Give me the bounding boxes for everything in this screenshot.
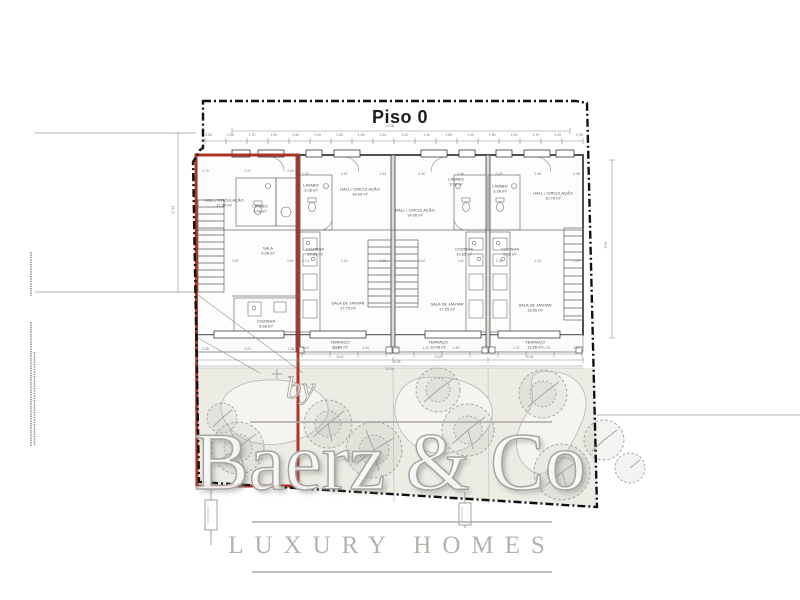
- room-label-unit1-lavabo: LAVABO2.43 m²: [252, 204, 267, 215]
- room-label-unit2-terraco: TERRAÇO10.90 m²: [330, 340, 350, 351]
- dim-terrace-total-4: 5.06: [527, 355, 534, 359]
- dim-value: 1.05: [227, 133, 234, 137]
- tree: [584, 420, 624, 460]
- room-label-unit4-cozinha: COZINHA9.55 m²: [501, 247, 519, 258]
- dim-value: 0.41: [341, 172, 348, 176]
- dim-value: 0.30: [418, 172, 425, 176]
- tree: [615, 453, 645, 483]
- dim-value: 1.20: [362, 346, 369, 350]
- watermark-rule-bottom: [252, 571, 552, 573]
- upper-dimension-row: 1.020.412.440.302.460.432.460.38: [302, 172, 580, 176]
- room-label-unit3-terraco: TERRAÇO10.45 m²: [428, 340, 448, 351]
- room-label-unit2-hall: HALL / CIRCULAÇÃO14.00 m²: [340, 187, 379, 198]
- room-label-unit2-sala: SALA DE JANTAR17.75 m²: [331, 301, 364, 312]
- dim-value: 1.70: [249, 133, 256, 137]
- room-label-unit1-cozinha: COZINHA8.68 m²: [257, 319, 275, 330]
- watermark-by: by: [286, 370, 315, 406]
- dim-value: 2.46: [534, 172, 541, 176]
- unit1-bottom-dims: 2.480.971.18: [202, 347, 294, 351]
- dim-value: 1.19: [302, 346, 309, 350]
- dim-left-height: 11.34: [171, 206, 175, 215]
- dim-value: 0.38: [205, 133, 212, 137]
- mid-dimension-row: 2.131.441.000.821.622.351.031.90: [302, 259, 580, 263]
- dim-terrace-total-1: 5.45: [337, 355, 344, 359]
- dim-value: 1.02: [302, 172, 309, 176]
- room-label-unit4-lavabo: LAVABO3.38 m²: [492, 184, 507, 195]
- dim-terrace-total-2: 9.38: [394, 360, 401, 364]
- dim-value: 2.48: [202, 347, 209, 351]
- dim-value: 2.35: [496, 259, 503, 263]
- dim-terrace-total-3: 5.32: [435, 355, 442, 359]
- room-label-unit2-cozinha: COZINHA10.65 m²: [306, 247, 324, 258]
- dim-value: 1.70: [202, 169, 209, 173]
- dim-value: 1.70: [532, 133, 539, 137]
- dim-total-width: 23.08: [386, 124, 395, 128]
- dim-value: 1.20: [573, 346, 580, 350]
- watermark-brand: Baerz & Co: [194, 415, 586, 509]
- dim-value: 2.46: [457, 172, 464, 176]
- room-label-unit3-sala: SALA DE JANTAR17.25 m²: [430, 302, 463, 313]
- room-label-unit4-hall: HALL / CIRCULAÇÃO10.70 m²: [533, 191, 572, 202]
- dim-value: 1.47: [513, 346, 520, 350]
- unit1-top-dims: 1.700.372.40: [202, 169, 294, 173]
- floorplan-page: { "title": "Piso 0", "watermark": { "pre…: [0, 0, 800, 600]
- dim-value: 1.00: [336, 133, 343, 137]
- dim-value: 0.38: [573, 172, 580, 176]
- room-label-unit1-sala: SALA6.28 m²: [261, 246, 275, 257]
- dim-value: 1.90: [314, 133, 321, 137]
- dim-value: 1.44: [341, 259, 348, 263]
- dim-value: 1.00: [467, 133, 474, 137]
- room-label-unit2-lavabo: LAVABO3.36 m²: [303, 183, 318, 194]
- dim-value: 1.90: [489, 133, 496, 137]
- room-label-unit4-terraco: TERRAÇO11.85 m²: [525, 340, 545, 351]
- dim-value: 1.00: [379, 259, 386, 263]
- dim-value: 0.50: [287, 259, 294, 263]
- watermark-tagline: LUXURY HOMES: [228, 532, 556, 560]
- room-label-unit3-cozinha: COZINHA10.65 m²: [455, 247, 473, 258]
- dim-value: 1.00: [554, 133, 561, 137]
- dim-value: 1.18: [287, 347, 294, 351]
- dim-value: 0.97: [245, 347, 252, 351]
- top-dimension-row: 0.381.051.701.001.501.901.001.001.521.00…: [205, 133, 583, 137]
- room-label-unit4-sala: SALA DE JANTAR18.65 m²: [518, 303, 551, 314]
- dim-value: 1.00: [270, 133, 277, 137]
- margin-microtext: [31, 252, 35, 446]
- dim-value: 1.03: [534, 259, 541, 263]
- room-label-unit3-lavabo: LAVABO3.38 m²: [448, 177, 463, 188]
- dim-value: 2.44: [379, 172, 386, 176]
- page-title: Piso 0: [372, 107, 428, 128]
- dim-value: 1.90: [573, 259, 580, 263]
- dim-value: 0.37: [245, 169, 252, 173]
- floorplan-drawing: [0, 0, 800, 600]
- tree: [416, 368, 460, 412]
- dim-terrace-overall: 22.16: [386, 367, 395, 371]
- dim-value: 2.87: [232, 259, 239, 263]
- dim-value: 1.00: [401, 133, 408, 137]
- dim-value: 1.52: [380, 133, 387, 137]
- dim-value: 1.49: [453, 346, 460, 350]
- dim-value: 0.43: [496, 172, 503, 176]
- tree: [519, 370, 567, 418]
- dim-value: 1.00: [511, 133, 518, 137]
- room-label-unit1-hall: HALL / CIRCULAÇÃO17.98 m²: [204, 198, 243, 209]
- dim-value: 1.62: [457, 259, 464, 263]
- dim-value: 1.50: [445, 133, 452, 137]
- watermark-rule-middle: [252, 521, 552, 523]
- dim-value: 1.20: [483, 346, 490, 350]
- dim-value: 0.82: [418, 259, 425, 263]
- dim-value: 2.40: [287, 169, 294, 173]
- room-label-unit3-hall: HALL / CIRCULAÇÃO14.00 m²: [395, 208, 434, 219]
- dim-value: 2.13: [302, 259, 309, 263]
- dim-value: 1.52: [392, 346, 399, 350]
- dim-value: 1.00: [423, 133, 430, 137]
- dim-value: 0.38: [576, 133, 583, 137]
- dim-value: 1.50: [292, 133, 299, 137]
- dim-value: 1.00: [358, 133, 365, 137]
- unit1-mid-dims: 2.870.50: [232, 259, 294, 263]
- dim-right-height: 9.55: [604, 242, 608, 249]
